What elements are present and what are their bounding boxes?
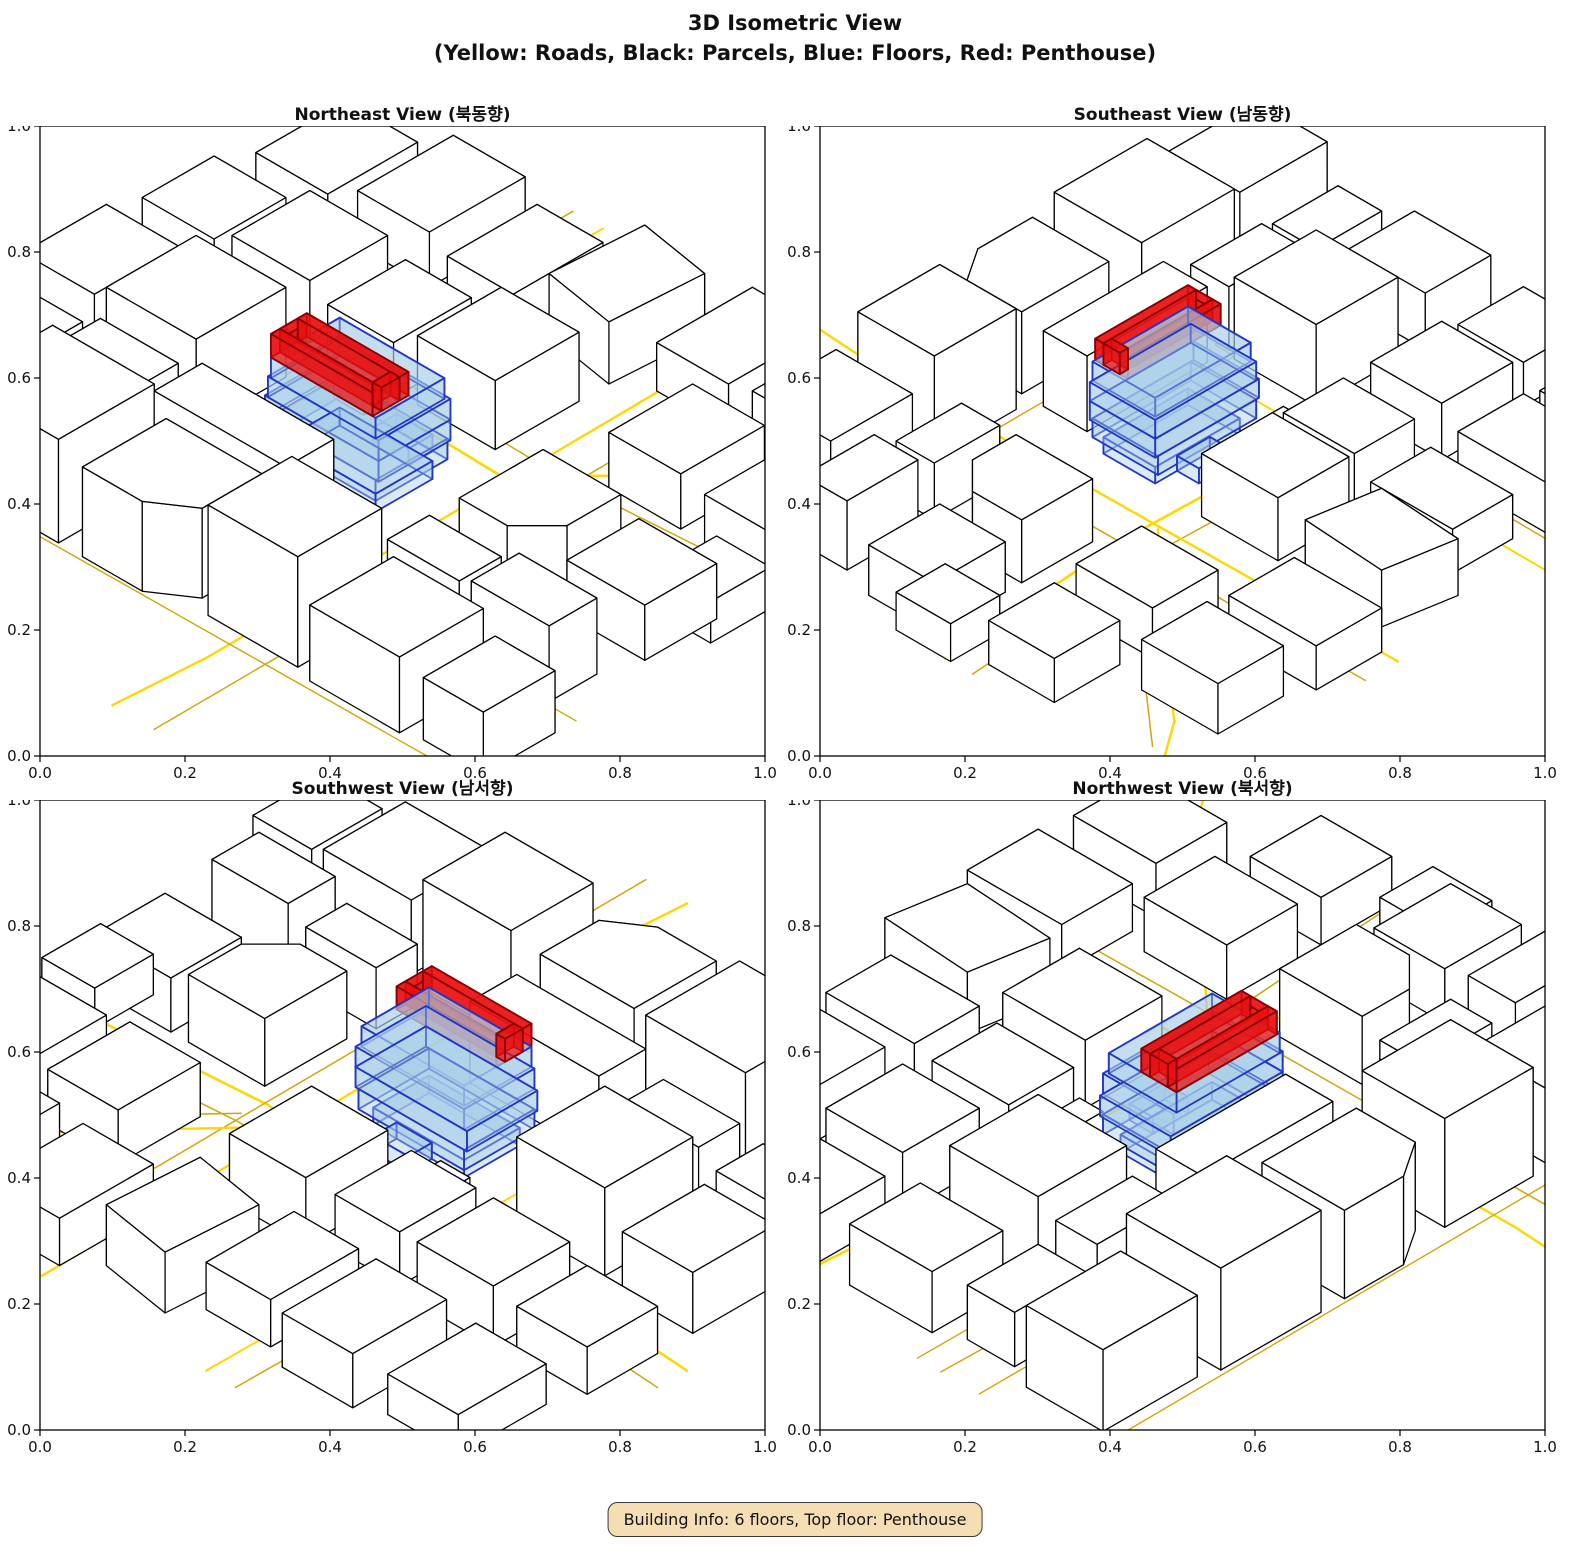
svg-text:0.6: 0.6 xyxy=(7,1043,31,1061)
svg-text:1.0: 1.0 xyxy=(787,126,811,135)
svg-text:0.6: 0.6 xyxy=(7,369,31,387)
northwest-view-title: Northwest View (북서향) xyxy=(820,774,1545,799)
northwest-view-plot: 0.00.00.20.20.40.40.60.60.80.81.01.0 xyxy=(780,800,1560,1464)
svg-text:0.4: 0.4 xyxy=(7,1169,31,1187)
view-panel-northwest: Northwest View (북서향) 0.00.00.20.20.40.40… xyxy=(780,772,1560,1464)
svg-text:0.8: 0.8 xyxy=(7,243,31,261)
northeast-view-plot: 0.00.00.20.20.40.40.60.60.80.81.01.0 xyxy=(0,126,780,790)
svg-text:0.6: 0.6 xyxy=(1243,1438,1267,1456)
svg-text:0.4: 0.4 xyxy=(7,495,31,513)
svg-text:0.0: 0.0 xyxy=(7,1421,31,1439)
svg-text:0.0: 0.0 xyxy=(7,747,31,765)
svg-text:0.8: 0.8 xyxy=(7,917,31,935)
southeast-view-plot: 0.00.00.20.20.40.40.60.60.80.81.01.0 xyxy=(780,126,1560,790)
southwest-view-title: Southwest View (남서향) xyxy=(40,774,765,799)
svg-text:1.0: 1.0 xyxy=(1533,1438,1557,1456)
svg-text:1.0: 1.0 xyxy=(7,800,31,809)
svg-text:0.4: 0.4 xyxy=(1098,1438,1122,1456)
figure-title-line1: 3D Isometric View xyxy=(0,8,1590,38)
view-panel-northeast: Northeast View (북동향) 0.00.00.20.20.40.40… xyxy=(0,98,780,790)
view-panel-southwest: Southwest View (남서향) 0.00.00.20.20.40.40… xyxy=(0,772,780,1464)
svg-text:0.8: 0.8 xyxy=(1388,1438,1412,1456)
figure-title-line2: (Yellow: Roads, Black: Parcels, Blue: Fl… xyxy=(0,38,1590,68)
building-info-badge: Building Info: 6 floors, Top floor: Pent… xyxy=(608,1502,983,1537)
southeast-view-title: Southeast View (남동향) xyxy=(820,100,1545,125)
svg-text:0.6: 0.6 xyxy=(787,1043,811,1061)
svg-text:0.4: 0.4 xyxy=(318,1438,342,1456)
southwest-view-plot: 0.00.00.20.20.40.40.60.60.80.81.01.0 xyxy=(0,800,780,1464)
svg-text:0.2: 0.2 xyxy=(7,621,31,639)
svg-text:0.8: 0.8 xyxy=(608,1438,632,1456)
svg-text:0.4: 0.4 xyxy=(787,1169,811,1187)
svg-text:0.8: 0.8 xyxy=(787,917,811,935)
svg-text:0.0: 0.0 xyxy=(787,747,811,765)
svg-text:0.2: 0.2 xyxy=(173,1438,197,1456)
svg-text:0.2: 0.2 xyxy=(953,1438,977,1456)
northeast-view-title: Northeast View (북동향) xyxy=(40,100,765,125)
svg-text:1.0: 1.0 xyxy=(787,800,811,809)
svg-text:0.2: 0.2 xyxy=(787,621,811,639)
svg-text:0.0: 0.0 xyxy=(28,1438,52,1456)
svg-text:0.6: 0.6 xyxy=(463,1438,487,1456)
svg-text:0.6: 0.6 xyxy=(787,369,811,387)
svg-text:0.2: 0.2 xyxy=(7,1295,31,1313)
figure: 3D Isometric View (Yellow: Roads, Black:… xyxy=(0,0,1590,1560)
svg-text:0.4: 0.4 xyxy=(787,495,811,513)
svg-text:0.8: 0.8 xyxy=(787,243,811,261)
svg-text:0.0: 0.0 xyxy=(808,1438,832,1456)
svg-text:0.0: 0.0 xyxy=(787,1421,811,1439)
svg-text:1.0: 1.0 xyxy=(7,126,31,135)
view-panel-southeast: Southeast View (남동향) 0.00.00.20.20.40.40… xyxy=(780,98,1560,790)
figure-title: 3D Isometric View (Yellow: Roads, Black:… xyxy=(0,8,1590,69)
svg-text:1.0: 1.0 xyxy=(753,1438,777,1456)
svg-text:0.2: 0.2 xyxy=(787,1295,811,1313)
